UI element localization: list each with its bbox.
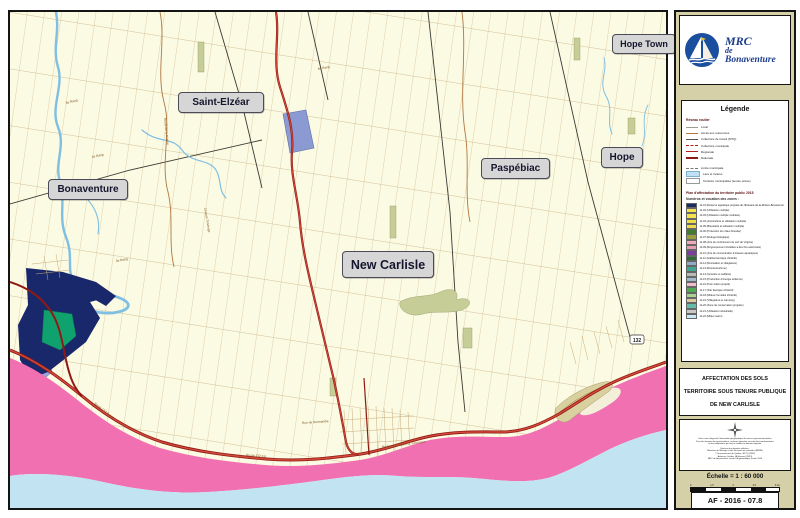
zone-label: 11-20 (Zone de conservation projetée) — [700, 304, 744, 307]
logo-box: MRC de Bonaventure — [679, 15, 791, 85]
zone-label: 11-03 (Utilisation multiple modulée) — [700, 214, 740, 217]
legend-zone-item: 11-22 (Milieu marin) — [686, 314, 784, 319]
scale-text: Échelle = 1 : 60 000 — [676, 473, 794, 480]
zone-label: 11-16 (Parc éolien projeté) — [700, 283, 731, 286]
map-title-line3: DE NEW CARLISLE — [680, 402, 790, 408]
legend-item-label: Collectrice municipale — [701, 144, 729, 148]
legend: Légende Réseau routier Local Accès aux r… — [681, 100, 789, 362]
map-sheet: 4e Rang 5e Rang 3e Rang 6e Rang Route de… — [0, 0, 800, 518]
compass-disclaimer-box: Cette carte intègre de l'information géo… — [679, 419, 791, 471]
legend-item-label: Territoire municipalisé (tenure privée) — [703, 179, 751, 183]
road-transit-line-swatch — [686, 139, 698, 140]
logo-line-bonaventure: Bonaventure — [725, 56, 776, 66]
legend-patp-subtitle: Numéros et vocation des zones : — [686, 197, 784, 201]
town-label-new-carlisle: New Carlisle — [342, 251, 434, 278]
svg-text:132: 132 — [633, 338, 642, 344]
zone-label: 11-01 (Réserve aquatique projetée de l'E… — [700, 204, 785, 207]
zone-label: 11-06 (Protection du milieu forestier) — [700, 230, 742, 233]
scale-tick: 3 — [732, 484, 733, 487]
town-label-hope-town: Hope Town — [612, 34, 676, 54]
mrc-bonaventure-logo-icon — [682, 30, 722, 70]
lakes-rivers-swatch — [686, 171, 700, 177]
scale-tick: 0 — [690, 484, 691, 487]
town-label-bonaventure: Bonaventure — [48, 179, 128, 200]
route-132-shield: 132 — [630, 335, 644, 344]
map-canvas: 4e Rang 5e Rang 3e Rang 6e Rang Route de… — [10, 12, 666, 508]
scale-bar-graphic — [690, 487, 780, 492]
private-tenure-swatch — [686, 178, 700, 184]
zone-label: 11-18 (Milieux humides d'intérêt) — [700, 294, 737, 297]
map-title-block: AFFECTATION DES SOLS TERRITOIRE SOUS TEN… — [679, 368, 791, 416]
zone-label: 11-22 (Milieu marin) — [700, 315, 723, 318]
legend-item-label: Lacs et rivières — [703, 172, 722, 176]
legend-item-label: Régionale — [701, 150, 714, 154]
zone-label: 11-13 (Récréotourisme) — [700, 267, 727, 270]
road-local-line-swatch — [686, 127, 698, 128]
zone-label: 11-17 (Site faunique d'intérêt) — [700, 289, 734, 292]
zone-label: 11-05 (Bleuetière et utilisation multipl… — [700, 225, 745, 228]
zone-label: 11-08 (Aire de confinement du cerf de Vi… — [700, 241, 754, 244]
zone-label: 11-19 (Villégiature et camping) — [700, 299, 735, 302]
legend-title: Légende — [686, 106, 784, 113]
municipal-limit-line-swatch — [686, 168, 698, 169]
zone-label: 11-14 (Gravière et sablière) — [700, 273, 732, 276]
zone-label: 11-11 (Habitat faunique d'intérêt) — [700, 257, 737, 260]
zone-swatch — [686, 314, 697, 319]
town-label-saint-elzear: Saint-Elzéar — [178, 92, 264, 113]
map-title-line1: AFFECTATION DES SOLS — [680, 376, 790, 382]
document-code: AF - 2016 - 07.8 — [708, 496, 763, 505]
town-label-hope: Hope — [601, 147, 643, 168]
disclaimer-text: Cette carte intègre de l'information géo… — [680, 438, 790, 461]
map-title-line2: TERRITOIRE SOUS TENURE PUBLIQUE — [680, 389, 790, 395]
zone-label: 11-04 (Acériculture et utilisation multi… — [700, 220, 747, 223]
legend-item-label: Collectrice de transit (MTQ) — [701, 137, 736, 141]
zone-label: 11-09 (Regroupement d'érables à des fins… — [700, 246, 761, 249]
side-panel: MRC de Bonaventure Légende Réseau routie… — [674, 10, 796, 510]
legend-item-label: Nationale — [701, 156, 713, 160]
compass-rose-icon — [727, 422, 743, 438]
town-label-paspebiac: Paspébiac — [481, 158, 550, 179]
scale-tick: 6 km — [775, 484, 780, 487]
road-national-line-swatch — [686, 157, 698, 159]
scale-tick: 1,5 — [710, 484, 713, 487]
logo-wordmark: MRC de Bonaventure — [725, 35, 776, 66]
zone-label: 11-12 (Récréation et villégiature) — [700, 262, 737, 265]
scale-bar: 0 1,5 3 4,5 6 km — [690, 484, 780, 492]
disclaimer-line: MRC de Bonaventure, service de géomatiqu… — [680, 458, 790, 461]
zone-label: 11-15 (Production d'énergie éolienne) — [700, 278, 743, 281]
document-code-box: AF - 2016 - 07.8 — [691, 492, 779, 509]
road-resource-line-swatch — [686, 133, 698, 134]
map-frame: 4e Rang 5e Rang 3e Rang 6e Rang Route de… — [8, 10, 668, 510]
legend-patp-title: Plan d'affectation du territoire public … — [686, 191, 784, 195]
zone-label: 11-21 (Utilisation industrielle) — [700, 310, 733, 313]
road-collector-line-swatch — [686, 145, 698, 146]
zone-label: 11-10 (Aire de concentration d'oiseaux a… — [700, 252, 758, 255]
legend-item-label: Limite municipale — [701, 166, 723, 170]
zone-label: 11-07 (Refuge biologique) — [700, 236, 730, 239]
legend-item-label: Local — [701, 125, 708, 129]
road-regional-line-swatch — [686, 151, 698, 152]
legend-item-label: Accès aux ressources — [701, 131, 729, 135]
scale-tick: 4,5 — [753, 484, 756, 487]
zone-label: 11-02 (Utilisation multiple) — [700, 209, 730, 212]
legend-roads-header: Réseau routier — [686, 118, 784, 122]
